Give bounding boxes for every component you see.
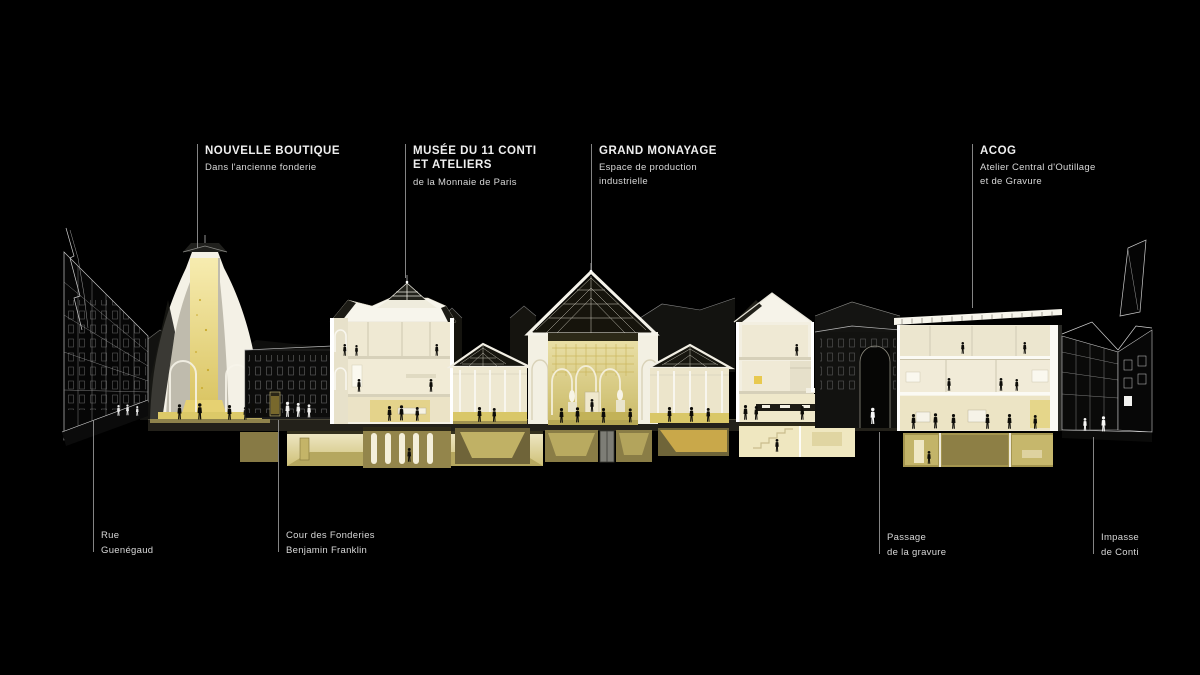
callout-subtitle: Dans l'ancienne fonderie [205, 161, 340, 175]
street-label-line: de la gravure [887, 546, 946, 561]
callout-title: ACOG [980, 144, 1096, 158]
leader-grand-monayage [591, 144, 592, 270]
rue-guenegaud-wireframe [62, 228, 148, 446]
label-cour-des-fonderies: Cour des Fonderies Benjamin Franklin [286, 529, 375, 558]
callout-subtitle-line2: industrielle [599, 175, 717, 189]
street-label-line: Guenégaud [101, 544, 153, 559]
acog-building [894, 309, 1062, 431]
callout-title: NOUVELLE BOUTIQUE [205, 144, 340, 158]
label-rue-guenegaud: Rue Guenégaud [101, 529, 153, 558]
label-passage-gravure: Passage de la gravure [887, 531, 946, 560]
callout-subtitle-line2: et de Gravure [980, 175, 1096, 189]
leader-nouvelle-boutique [197, 144, 198, 248]
street-label-line: Impasse [1101, 531, 1139, 546]
crypt-columns [363, 427, 451, 468]
leader-impasse-conti [1093, 437, 1094, 554]
leader-rue-guenegaud [93, 420, 94, 552]
cour-des-fonderies-courtyard [245, 346, 332, 418]
street-label-line: Passage [887, 531, 946, 546]
street-label-line: Benjamin Franklin [286, 544, 375, 559]
passage-de-la-gravure [815, 326, 900, 428]
sectional-perspective-illustration [0, 0, 1200, 675]
musee-du-11-conti-building [330, 275, 456, 424]
street-label-line: Cour des Fonderies [286, 529, 375, 544]
callout-acog: ACOG Atelier Central d'Outillage et de G… [980, 144, 1096, 189]
callout-nouvelle-boutique: NOUVELLE BOUTIQUE Dans l'ancienne fonder… [205, 144, 340, 175]
poster-canvas: NOUVELLE BOUTIQUE Dans l'ancienne fonder… [0, 0, 1200, 675]
callout-title: GRAND MONAYAGE [599, 144, 717, 158]
callout-subtitle: Espace de production [599, 161, 717, 175]
leader-musee-11-conti [405, 144, 406, 278]
callout-title-line2: ET ATELIERS [413, 158, 537, 172]
callout-subtitle: Atelier Central d'Outillage [980, 161, 1096, 175]
leader-acog [972, 144, 973, 308]
leader-passage-gravure [879, 432, 880, 554]
callout-musee-11-conti: MUSÉE DU 11 CONTI ET ATELIERS de la Monn… [413, 144, 537, 190]
callout-title: MUSÉE DU 11 CONTI [413, 144, 537, 158]
maison-basement [739, 423, 855, 457]
callout-grand-monayage: GRAND MONAYAGE Espace de production indu… [599, 144, 717, 189]
grand-monayage-hall [528, 263, 658, 425]
street-label-line: Rue [101, 529, 153, 544]
street-label-line: de Conti [1101, 546, 1139, 561]
impasse-de-conti-wireframe [1062, 240, 1152, 442]
leader-cour-des-fonderies [278, 420, 279, 552]
acog-basement [903, 433, 1053, 467]
callout-subtitle: de la Monnaie de Paris [413, 176, 537, 190]
label-impasse-conti: Impasse de Conti [1101, 531, 1139, 560]
